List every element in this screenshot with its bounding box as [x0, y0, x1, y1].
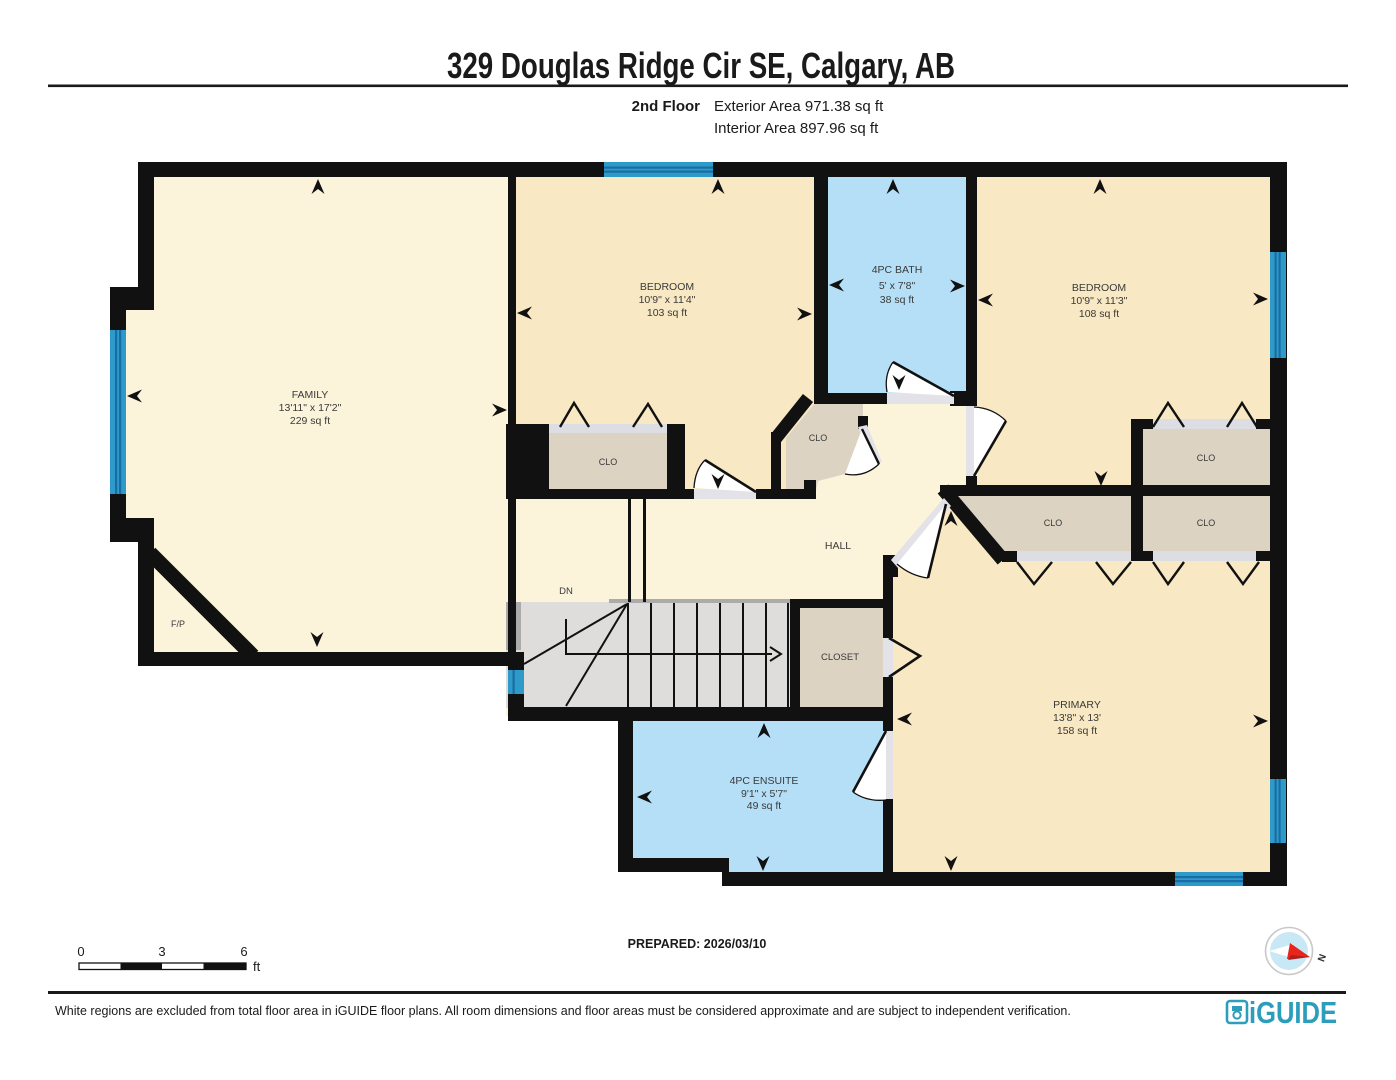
svg-text:10'9" x 11'4": 10'9" x 11'4" [639, 294, 696, 306]
svg-text:PRIMARY: PRIMARY [1053, 699, 1101, 711]
svg-text:CLOSET: CLOSET [821, 652, 859, 663]
svg-text:38 sq ft: 38 sq ft [880, 294, 915, 306]
svg-text:13'11" x 17'2": 13'11" x 17'2" [279, 402, 342, 414]
svg-text:4PC ENSUITE: 4PC ENSUITE [730, 775, 799, 787]
svg-text:2nd Floor: 2nd Floor [632, 98, 700, 115]
svg-text:CLO: CLO [809, 433, 828, 443]
svg-text:DN: DN [559, 586, 573, 597]
svg-text:CLO: CLO [1197, 518, 1216, 528]
svg-text:White regions are excluded fro: White regions are excluded from total fl… [55, 1004, 1071, 1018]
svg-text:108 sq ft: 108 sq ft [1079, 308, 1119, 320]
svg-text:Interior Area 897.96 sq ft: Interior Area 897.96 sq ft [714, 120, 879, 137]
svg-text:4PC BATH: 4PC BATH [872, 264, 923, 276]
svg-text:6: 6 [240, 944, 247, 959]
svg-text:229 sq ft: 229 sq ft [290, 415, 330, 427]
svg-text:10'9" x 11'3": 10'9" x 11'3" [1071, 295, 1128, 307]
svg-text:103 sq ft: 103 sq ft [647, 307, 687, 319]
svg-text:BEDROOM: BEDROOM [640, 281, 694, 293]
svg-text:CLO: CLO [599, 457, 618, 467]
svg-text:329 Douglas Ridge Cir SE, Calg: 329 Douglas Ridge Cir SE, Calgary, AB [447, 45, 955, 86]
svg-text:9'1" x 5'7": 9'1" x 5'7" [741, 788, 787, 800]
svg-text:13'8" x 13': 13'8" x 13' [1053, 712, 1101, 724]
svg-text:5' x 7'8": 5' x 7'8" [879, 280, 916, 292]
svg-text:FAMILY: FAMILY [292, 389, 329, 401]
svg-text:3: 3 [158, 944, 165, 959]
svg-text:0: 0 [77, 944, 84, 959]
svg-text:F/P: F/P [171, 619, 185, 629]
svg-text:CLO: CLO [1044, 518, 1063, 528]
svg-text:49 sq ft: 49 sq ft [747, 800, 782, 812]
svg-text:ft: ft [253, 959, 261, 974]
svg-text:BEDROOM: BEDROOM [1072, 282, 1126, 294]
svg-text:Exterior Area 971.38 sq ft: Exterior Area 971.38 sq ft [714, 98, 884, 115]
svg-text:PREPARED: 2026/03/10: PREPARED: 2026/03/10 [628, 937, 767, 951]
svg-text:iGUIDE: iGUIDE [1249, 995, 1337, 1030]
svg-text:HALL: HALL [825, 540, 851, 552]
svg-text:158 sq ft: 158 sq ft [1057, 725, 1097, 737]
svg-text:CLO: CLO [1197, 453, 1216, 463]
